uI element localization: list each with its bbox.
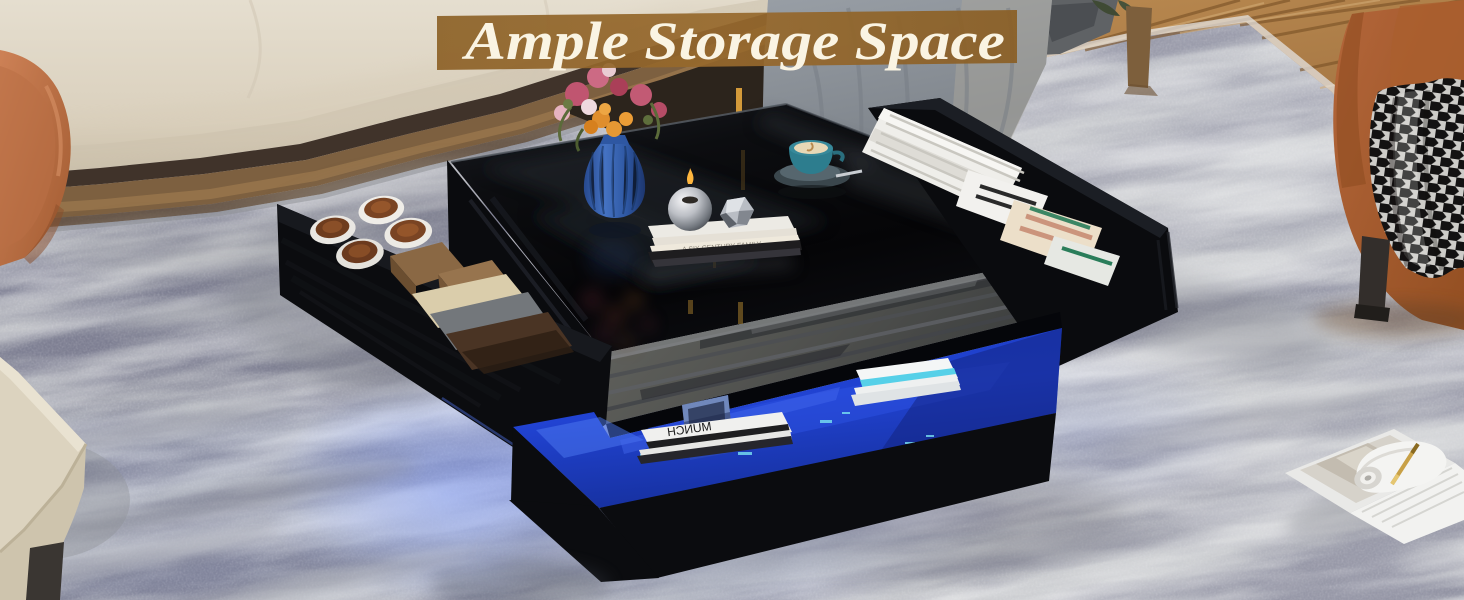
svg-text:Ample Storage Space: Ample Storage Space [462, 11, 1005, 71]
